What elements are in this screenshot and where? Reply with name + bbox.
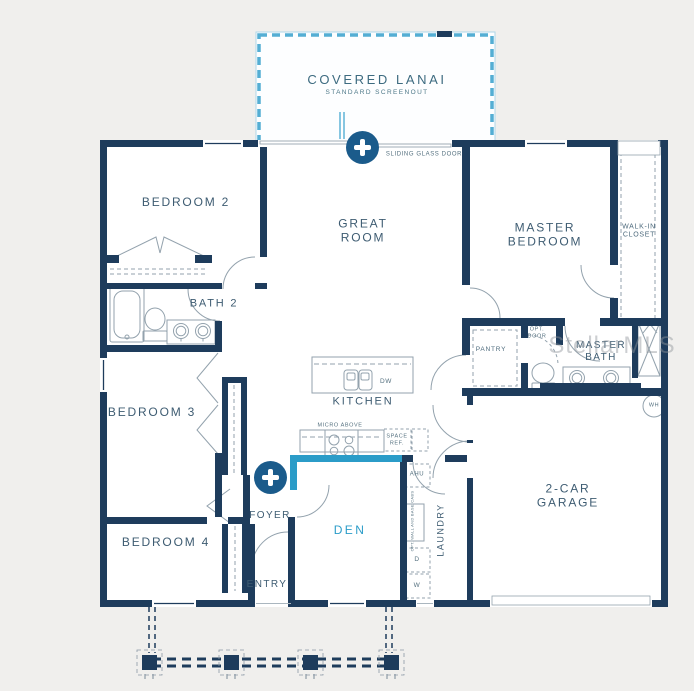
porch-columns bbox=[142, 655, 399, 670]
lanai-vent-marker bbox=[437, 31, 452, 37]
closet-window-bay bbox=[618, 141, 660, 155]
garage-door bbox=[492, 596, 650, 605]
covered-lanai-area bbox=[256, 31, 495, 144]
floor-plan-drawing bbox=[0, 0, 694, 691]
lanai-hotspot-button[interactable] bbox=[346, 131, 379, 164]
den-accent-wall bbox=[290, 455, 402, 462]
foyer-hotspot-button[interactable] bbox=[254, 461, 287, 494]
floor-plan: COVERED LANAI STANDARD SCREENOUT SLIDING… bbox=[0, 0, 694, 691]
front-porch bbox=[137, 607, 404, 679]
